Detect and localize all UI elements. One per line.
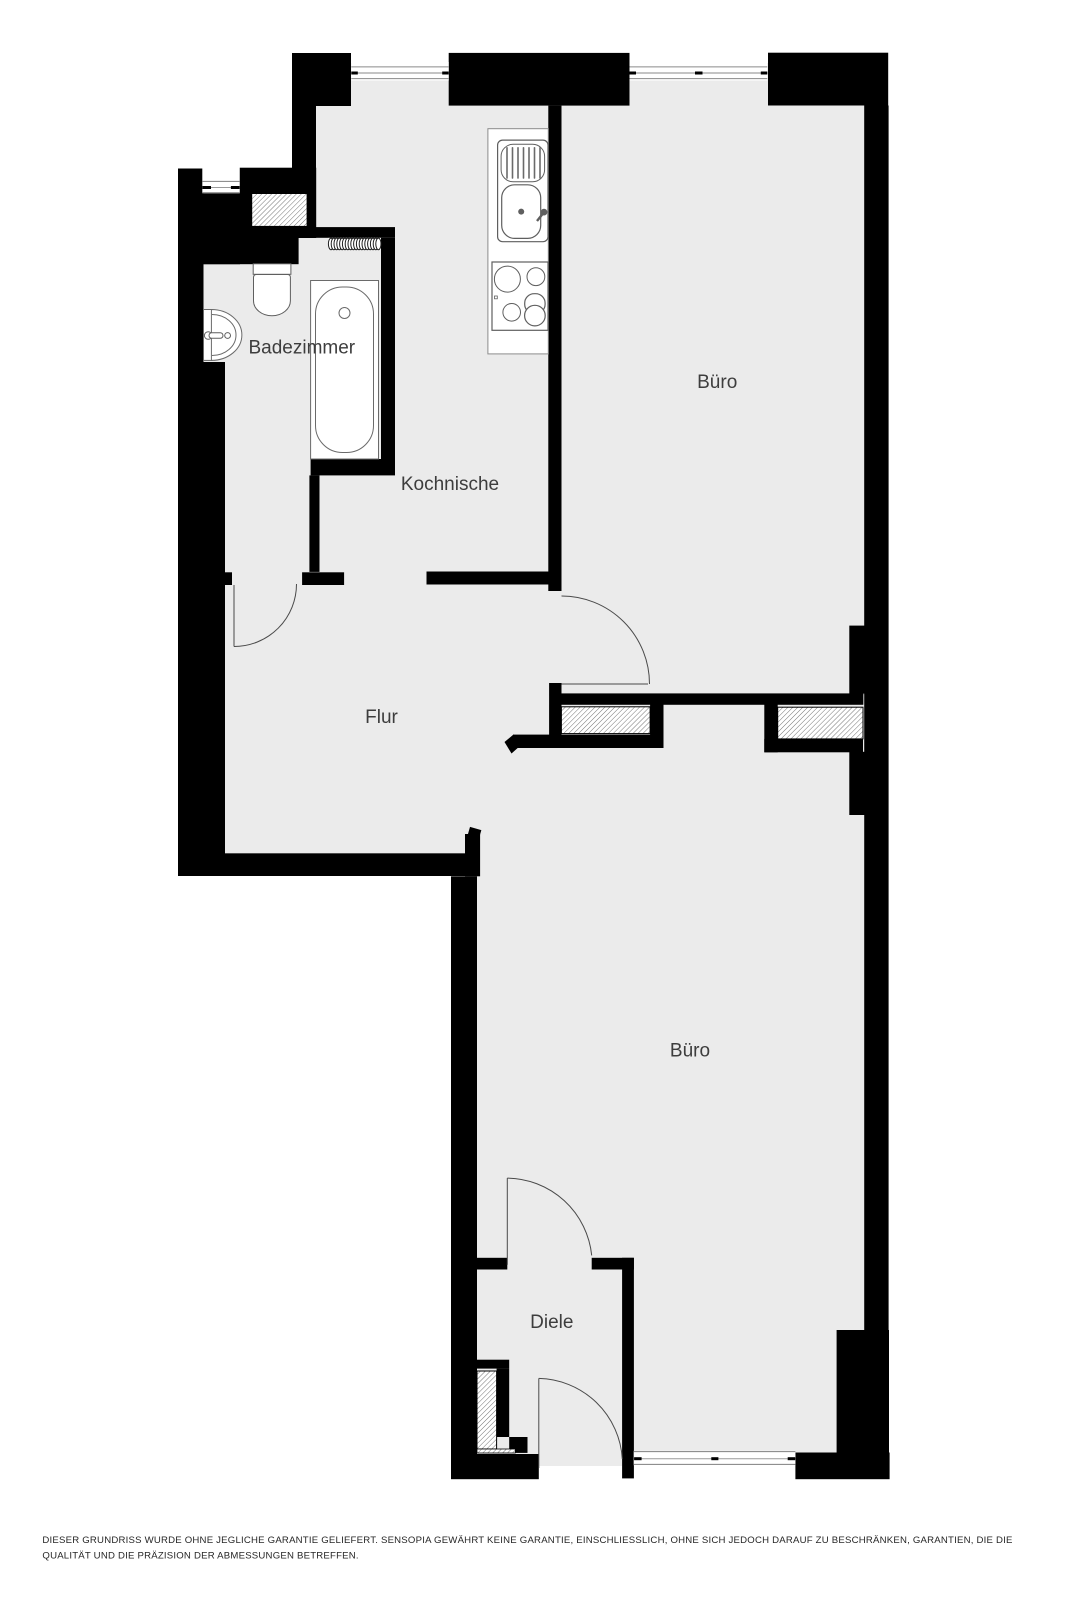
svg-text:DIESER GRUNDRISS WURDE OHNE JE: DIESER GRUNDRISS WURDE OHNE JEGLICHE GAR… (42, 1535, 1012, 1546)
svg-text:Diele: Diele (530, 1312, 573, 1333)
svg-text:Kochnische: Kochnische (401, 474, 499, 495)
svg-text:Flur: Flur (365, 707, 398, 728)
svg-text:Badezimmer: Badezimmer (248, 338, 355, 359)
svg-text:Büro: Büro (670, 1041, 710, 1062)
svg-text:QUALITÄT UND DIE PRÄZISION DER: QUALITÄT UND DIE PRÄZISION DER ABMESSUNG… (42, 1551, 358, 1562)
svg-text:Büro: Büro (697, 372, 737, 393)
